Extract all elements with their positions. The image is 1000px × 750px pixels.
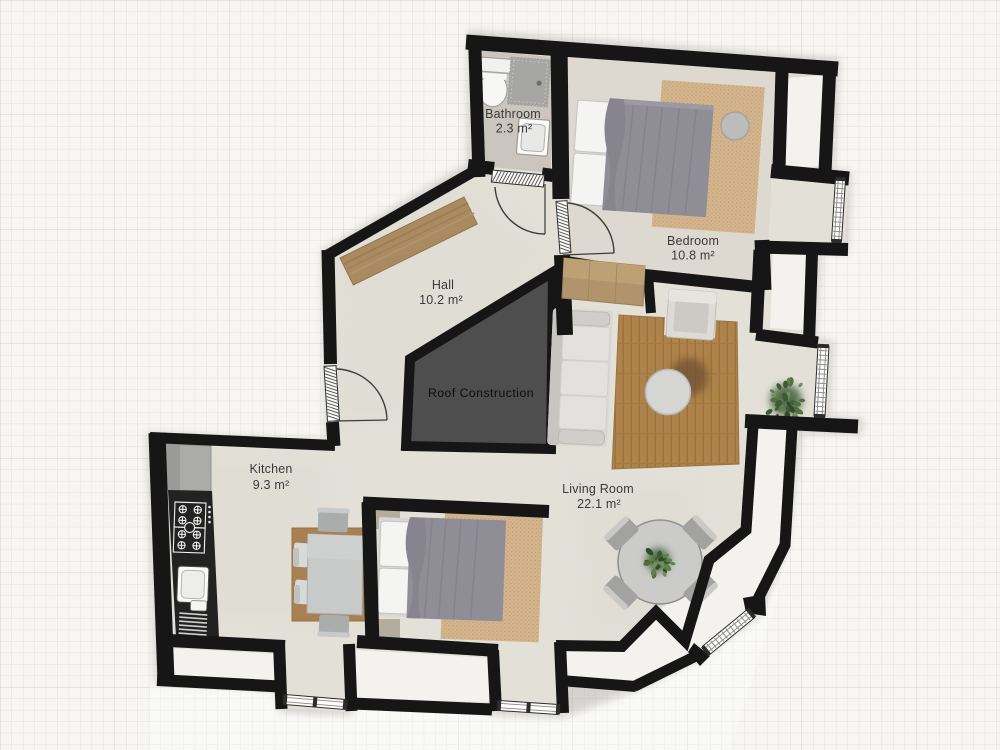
svg-text:10.8 m²: 10.8 m² bbox=[671, 249, 715, 263]
svg-text:Bathroom: Bathroom bbox=[485, 107, 541, 121]
svg-text:22.1 m²: 22.1 m² bbox=[577, 497, 621, 511]
svg-text:9.3 m²: 9.3 m² bbox=[253, 478, 290, 492]
svg-text:Living Room: Living Room bbox=[562, 482, 634, 496]
svg-text:Roof Construction: Roof Construction bbox=[428, 386, 534, 400]
svg-text:10.2 m²: 10.2 m² bbox=[419, 293, 463, 307]
svg-text:Kitchen: Kitchen bbox=[249, 462, 292, 476]
svg-text:Bedroom: Bedroom bbox=[667, 234, 719, 248]
svg-text:Hall: Hall bbox=[432, 278, 454, 292]
svg-text:2.3 m²: 2.3 m² bbox=[496, 122, 533, 136]
